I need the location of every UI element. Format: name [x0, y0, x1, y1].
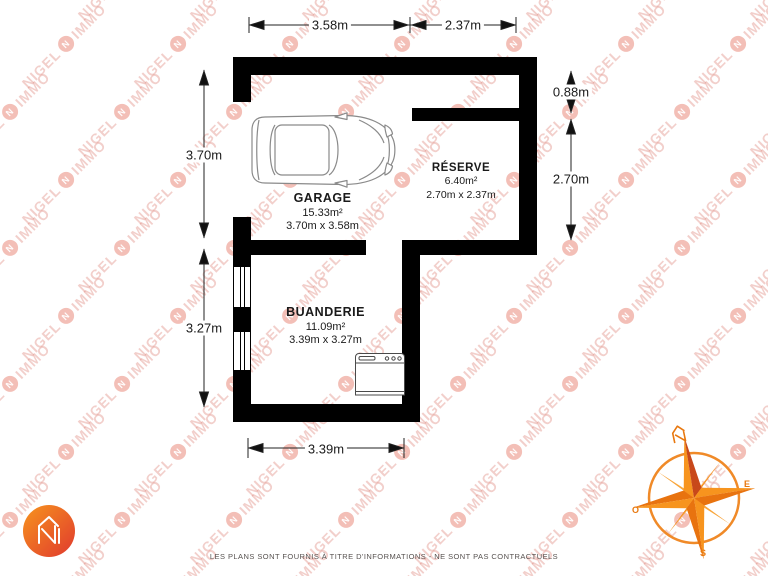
dim-top-garage: 3.58m: [309, 18, 351, 33]
reserve-area: 6.40m²: [400, 175, 522, 188]
washing-machine: [354, 349, 406, 399]
compass-rose-icon: E O S: [630, 420, 760, 560]
wall-buanderie-left-1: [233, 255, 251, 267]
wall-right-outer: [519, 57, 537, 255]
reserve-size: 2.70m x 2.37m: [400, 189, 522, 202]
garage-label: GARAGE 15.33m² 3.70m x 3.58m: [240, 191, 405, 234]
dim-right-reserve: 2.70m: [550, 172, 592, 187]
compass-east-label: E: [744, 479, 750, 489]
dim-bottom-buanderie: 3.39m: [305, 442, 347, 457]
buanderie-name: BUANDERIE: [243, 305, 408, 321]
reserve-name: RÉSERVE: [400, 161, 522, 175]
dim-right-passage: 0.88m: [550, 85, 592, 100]
wall-top: [233, 57, 537, 75]
window-buanderie-upper: [233, 267, 251, 307]
buanderie-area: 11.09m²: [243, 321, 408, 335]
garage-name: GARAGE: [240, 191, 405, 207]
wall-left-top-stub: [233, 57, 251, 102]
buanderie-label: BUANDERIE 11.09m² 3.39m x 3.27m: [243, 305, 408, 348]
dim-top-reserve: 2.37m: [442, 18, 484, 33]
car-top-view: [247, 112, 399, 188]
reserve-label: RÉSERVE 6.40m² 2.70m x 2.37m: [400, 161, 522, 202]
floor-plan-page: NIGELNIMMONIGELNIMMONIGELNIMMONIGELNIMMO…: [0, 0, 768, 576]
garage-size: 3.70m x 3.58m: [240, 220, 405, 234]
compass-south-label: S: [700, 548, 706, 558]
wall-reserve-bottom: [402, 240, 537, 255]
garage-area: 15.33m²: [240, 207, 405, 221]
wall-buanderie-bottom: [233, 404, 420, 422]
buanderie-size: 3.39m x 3.27m: [243, 334, 408, 348]
dim-left-buanderie: 3.27m: [183, 321, 225, 336]
wall-reserve-partition: [412, 108, 519, 121]
wall-garage-buanderie: [233, 240, 366, 255]
footer-disclaimer: LES PLANS SONT FOURNIS À TITRE D'INFORMA…: [210, 552, 558, 561]
dim-left-garage: 3.70m: [183, 148, 225, 163]
compass-west-label: O: [632, 505, 639, 515]
agency-logo-icon: [23, 505, 75, 557]
